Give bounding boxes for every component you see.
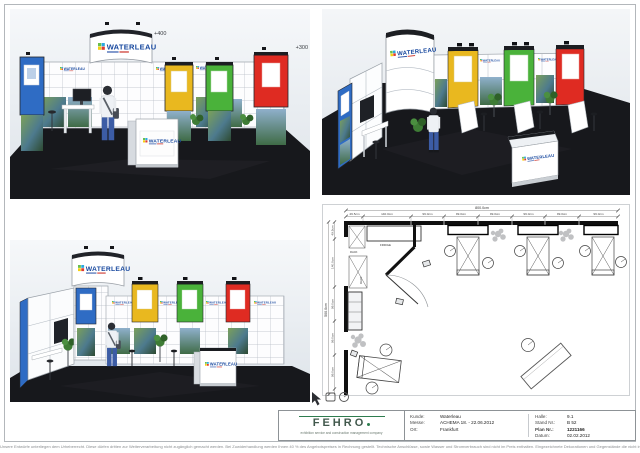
stool bbox=[481, 113, 488, 116]
spotlight-icon bbox=[26, 52, 30, 55]
svg-text:49.5cm: 49.5cm bbox=[349, 212, 360, 216]
dim-total-width: 800.0cm bbox=[475, 206, 489, 210]
stool bbox=[47, 360, 54, 363]
svg-text:140.0cm: 140.0cm bbox=[381, 212, 393, 216]
fehro-logo-box: FEHRO exhibition service and constructio… bbox=[279, 411, 405, 440]
stool bbox=[48, 110, 56, 113]
svg-text:99.0cm: 99.0cm bbox=[456, 212, 467, 216]
spotlight-icon bbox=[512, 42, 517, 45]
front-view-svg: WATERLEAU bbox=[10, 9, 310, 199]
svg-text:99.0cm: 99.0cm bbox=[593, 212, 604, 216]
tower-blue bbox=[76, 288, 96, 356]
svg-text:99.0cm: 99.0cm bbox=[330, 299, 334, 310]
spotlight-icon bbox=[138, 277, 143, 280]
poster bbox=[230, 290, 245, 309]
reception-counter bbox=[128, 119, 182, 168]
rack-label: RACK bbox=[359, 276, 363, 284]
spotlight-icon bbox=[564, 41, 569, 44]
reception-counter bbox=[508, 131, 558, 187]
photo-panel bbox=[180, 328, 200, 354]
title-block-info: Kunde: Waterleau Messe: ACHEMA 18. - 22.… bbox=[405, 411, 635, 440]
wall-cabinet bbox=[348, 292, 362, 330]
spotlight-icon bbox=[110, 246, 114, 249]
spotlight-icon bbox=[262, 47, 266, 50]
stool bbox=[591, 113, 598, 116]
height-label-300: +300 bbox=[296, 45, 308, 51]
tower-blue bbox=[338, 83, 352, 169]
photo-panel bbox=[435, 79, 447, 107]
cursor-marks bbox=[310, 392, 356, 410]
side-view-svg: WATERLEAU bbox=[10, 240, 310, 402]
field-datum: Datum: 02.02.2012 bbox=[535, 433, 630, 439]
svg-text:99.0cm: 99.0cm bbox=[523, 212, 534, 216]
dim-total-height: 500.0cm bbox=[324, 303, 328, 317]
svg-text:99.0cm: 99.0cm bbox=[330, 333, 334, 344]
poster bbox=[510, 55, 528, 81]
perspective-view-svg: WATERLEAU bbox=[322, 9, 630, 195]
svg-text:99.0cm: 99.0cm bbox=[422, 212, 433, 216]
render-side-view: WATERLEAU bbox=[10, 240, 310, 402]
tower-green bbox=[504, 42, 534, 106]
spotlight-icon bbox=[105, 22, 109, 25]
poster bbox=[562, 54, 579, 79]
circle-spoke bbox=[344, 395, 348, 398]
tower-yellow bbox=[132, 277, 158, 322]
spotlight-icon bbox=[136, 22, 140, 25]
title-block: FEHRO exhibition service and constructio… bbox=[278, 410, 636, 441]
mouse-cursor-icon bbox=[312, 392, 321, 406]
poster bbox=[80, 294, 92, 310]
spotlight-icon bbox=[183, 277, 188, 280]
copyright-disclaimer: Unsere Entwürfe unterliegen dem Urheberr… bbox=[0, 444, 640, 449]
spotlight-icon bbox=[457, 43, 462, 46]
floor-plan: 800.0cm 49.5cm 140.0cm 99.0cm 99.0cm 99.… bbox=[322, 204, 630, 396]
stool bbox=[372, 141, 379, 144]
tower-red bbox=[226, 277, 250, 322]
svg-text:140.0cm: 140.0cm bbox=[330, 257, 334, 269]
poster bbox=[262, 63, 280, 87]
svg-text:49.5cm: 49.5cm bbox=[330, 225, 334, 236]
spotlight-icon bbox=[524, 42, 529, 45]
poster bbox=[454, 56, 472, 82]
spotlight-icon bbox=[215, 57, 219, 60]
spotlight-icon bbox=[232, 277, 237, 280]
field-ort: Ort: Frankfurt bbox=[410, 427, 528, 433]
spotlight-icon bbox=[469, 43, 474, 46]
curved-logo-tower bbox=[386, 29, 437, 113]
svg-text:99.0cm: 99.0cm bbox=[557, 212, 568, 216]
stool bbox=[537, 111, 544, 114]
poster bbox=[182, 290, 197, 309]
svg-text:99.0cm: 99.0cm bbox=[490, 212, 501, 216]
poster bbox=[137, 290, 152, 309]
render-perspective-view: WATERLEAU bbox=[322, 9, 630, 195]
svg-text:99.0cm: 99.0cm bbox=[330, 367, 334, 378]
reception-counter bbox=[194, 348, 237, 386]
photo-panel bbox=[134, 328, 156, 354]
fridge-label: FRIDGE bbox=[380, 243, 391, 247]
tower-yellow bbox=[448, 43, 478, 108]
spotlight-icon bbox=[172, 57, 176, 60]
tower-green bbox=[206, 62, 233, 141]
rack-label: RACK bbox=[350, 250, 358, 254]
height-label-400: +400 bbox=[154, 31, 166, 37]
floor-plan-svg: 800.0cm 49.5cm 140.0cm 99.0cm 99.0cm 99.… bbox=[322, 204, 630, 396]
tower-red bbox=[556, 41, 584, 105]
fehro-logo-text: FEHRO bbox=[313, 418, 367, 429]
render-front-view: WATERLEAU bbox=[10, 9, 310, 199]
tower-green bbox=[177, 277, 203, 322]
small-box-mark bbox=[326, 393, 335, 401]
fridge-outline bbox=[367, 226, 421, 241]
tower-red bbox=[254, 52, 288, 145]
poster bbox=[171, 71, 187, 92]
fehro-logo-dot bbox=[367, 423, 370, 426]
poster bbox=[211, 71, 227, 92]
tower-blue bbox=[20, 57, 44, 151]
fehro-tagline: exhibition service and construction mana… bbox=[300, 431, 382, 435]
spotlight-icon bbox=[84, 246, 88, 249]
utility-box bbox=[396, 298, 404, 304]
monitor bbox=[73, 89, 91, 101]
